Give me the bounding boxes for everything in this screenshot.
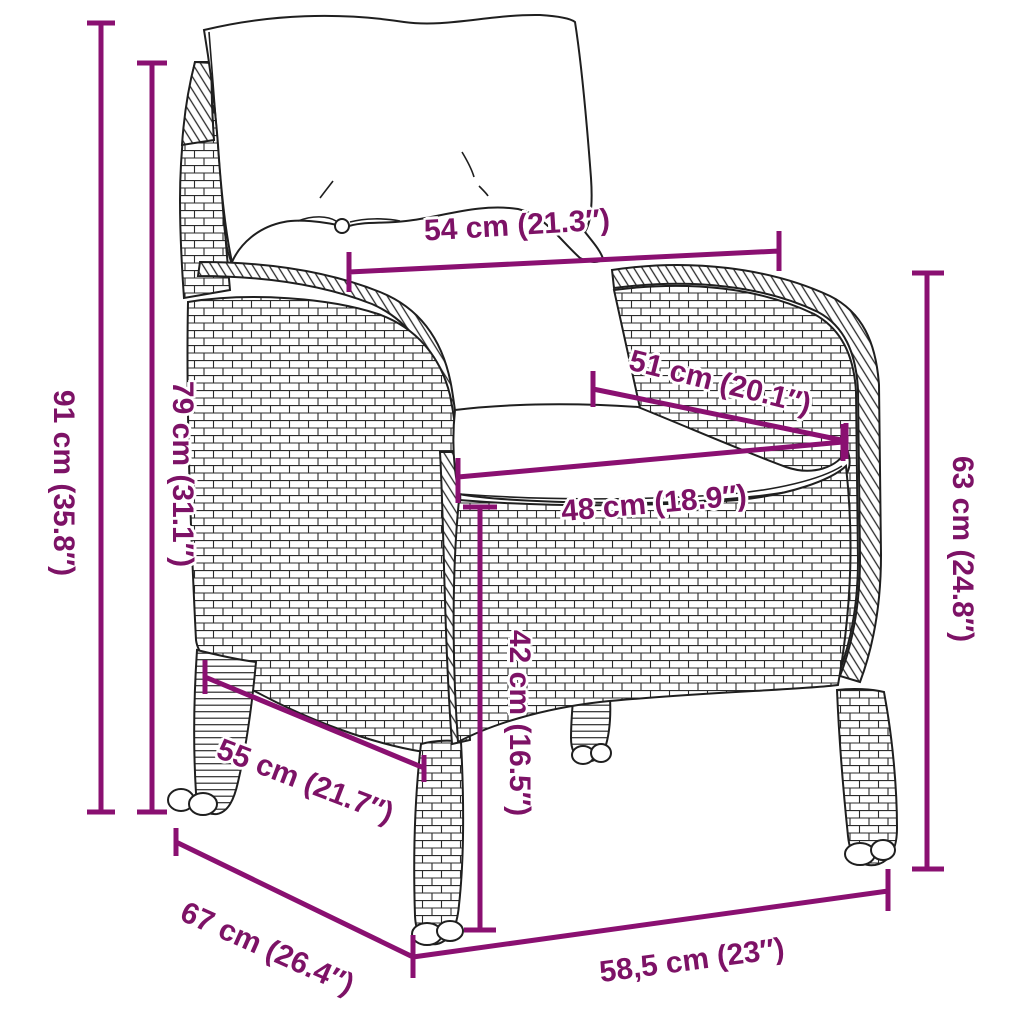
dimension-line-back-height bbox=[137, 63, 167, 812]
backrest-frame-rope-cap bbox=[182, 62, 214, 145]
back-left-foot-2 bbox=[189, 793, 217, 815]
dimension-line-total-height bbox=[87, 23, 115, 812]
dimension-label-total-height: 91 cm (35.8″) bbox=[46, 390, 80, 576]
dimension-label-back-height: 79 cm (31.1″) bbox=[165, 381, 199, 567]
front-right-foot bbox=[845, 843, 875, 865]
chair-line-drawing bbox=[0, 0, 1024, 1024]
front-right-foot-2 bbox=[871, 840, 895, 860]
dimension-line-front-width bbox=[413, 869, 888, 957]
back-right-foot-2 bbox=[591, 744, 611, 762]
front-left-foot-2 bbox=[437, 921, 463, 941]
product-dimension-diagram: 91 cm (35.8″) 79 cm (31.1″) 54 cm (21.3″… bbox=[0, 0, 1024, 1024]
back-cushion-button bbox=[335, 219, 349, 233]
dimension-label-seat-height: 42 cm (16.5″) bbox=[502, 630, 536, 816]
dimension-label-armrest-height: 63 cm (24.8″) bbox=[945, 456, 979, 642]
front-right-leg bbox=[837, 689, 897, 865]
dimension-line-armrest-height bbox=[912, 273, 944, 869]
